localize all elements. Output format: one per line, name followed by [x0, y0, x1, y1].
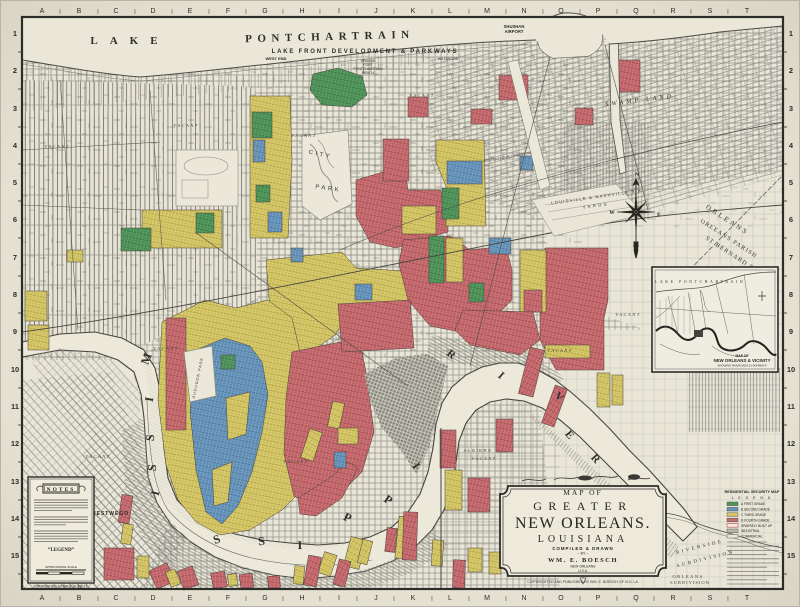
svg-text:14: 14: [11, 514, 20, 523]
svg-text:|: |: [245, 596, 246, 602]
svg-text:|: |: [59, 9, 60, 15]
svg-text:|: |: [431, 9, 432, 15]
svg-text:P: P: [596, 595, 601, 602]
svg-text:|: |: [208, 596, 209, 602]
svg-text:J: J: [374, 8, 378, 15]
svg-text:|: |: [393, 596, 394, 602]
svg-text:MAP OF: MAP OF: [563, 488, 602, 497]
svg-text:VACANT: VACANT: [283, 459, 308, 464]
svg-text:|: |: [393, 9, 394, 15]
svg-text:|: |: [282, 9, 283, 15]
svg-text:ORLEANS: ORLEANS: [672, 574, 703, 579]
svg-text:7: 7: [789, 253, 793, 262]
svg-text:“LEGEND”: “LEGEND”: [48, 547, 75, 553]
svg-text:VACANT: VACANT: [547, 348, 572, 353]
svg-text:13: 13: [11, 477, 19, 486]
svg-text:WM. E. BOESCH: WM. E. BOESCH: [548, 557, 618, 564]
svg-text:|: |: [134, 596, 135, 602]
svg-text:|: |: [208, 9, 209, 15]
svg-text:15: 15: [787, 551, 795, 560]
svg-text:|: |: [59, 596, 60, 602]
svg-text:S: S: [708, 595, 713, 602]
svg-text:|: |: [356, 9, 357, 15]
svg-text:A: A: [40, 595, 45, 602]
svg-text:|: |: [579, 596, 580, 602]
svg-text:I: I: [338, 595, 340, 602]
svg-text:Q: Q: [633, 595, 639, 602]
svg-text:K: K: [411, 8, 416, 15]
svg-text:E: E: [188, 595, 193, 602]
svg-text:I: I: [338, 8, 340, 15]
svg-text:|: |: [505, 596, 506, 602]
svg-text:COMMERCIAL: COMMERCIAL: [741, 535, 763, 539]
svg-text:14: 14: [787, 514, 796, 523]
svg-text:COMPILED & DRAWN: COMPILED & DRAWN: [552, 546, 613, 551]
svg-text:1: 1: [13, 29, 17, 38]
svg-text:NEW ORLEANS.: NEW ORLEANS.: [515, 515, 651, 532]
svg-text:|: |: [505, 9, 506, 15]
svg-text:15: 15: [11, 551, 19, 560]
svg-text:A: A: [40, 8, 45, 15]
svg-text:VACANT: VACANT: [471, 456, 496, 461]
svg-text:3: 3: [789, 104, 793, 113]
svg-text:E: E: [188, 8, 193, 15]
svg-text:G: G: [262, 595, 267, 602]
svg-text:O: O: [558, 8, 564, 15]
svg-text:R: R: [670, 595, 675, 602]
svg-text:|: |: [616, 9, 617, 15]
svg-text:RESIDENTIAL SECURITY MAP: RESIDENTIAL SECURITY MAP: [725, 490, 780, 494]
svg-text:12: 12: [11, 439, 19, 448]
svg-text:|: |: [653, 9, 654, 15]
svg-text:13: 13: [787, 477, 795, 486]
svg-text:NEW ORLEANS & VICINITY: NEW ORLEANS & VICINITY: [713, 358, 770, 363]
svg-text:L E G E N D: L E G E N D: [732, 496, 773, 500]
svg-text:C: C: [113, 8, 118, 15]
svg-text:C THIRD GRADE: C THIRD GRADE: [741, 513, 766, 517]
svg-text:VACANT: VACANT: [44, 144, 69, 149]
svg-text:S: S: [708, 8, 713, 15]
svg-text:5: 5: [789, 178, 793, 187]
svg-text:LOUISIANA: LOUISIANA: [538, 534, 628, 545]
svg-text:Q: Q: [633, 8, 639, 15]
svg-text:VACANT: VACANT: [291, 133, 316, 138]
svg-text:|: |: [727, 596, 728, 602]
svg-text:|: |: [468, 9, 469, 15]
svg-text:~ BY ~: ~ BY ~: [578, 552, 589, 556]
svg-text:3: 3: [13, 104, 17, 113]
svg-text:D: D: [150, 8, 155, 15]
svg-text:F: F: [226, 595, 230, 602]
svg-text:P: P: [596, 8, 601, 15]
svg-text:|: |: [319, 596, 320, 602]
svg-text:B: B: [77, 595, 82, 602]
svg-text:VACANT: VACANT: [615, 312, 640, 317]
svg-text:NOTES: NOTES: [47, 487, 76, 493]
svg-text:I: I: [297, 538, 302, 552]
svg-text:SHOWING RAILROADS & HIGHWAYS: SHOWING RAILROADS & HIGHWAYS: [718, 364, 767, 368]
svg-text:SUBDIVISION: SUBDIVISION: [670, 580, 710, 585]
svg-text:NEW ORLEANS: NEW ORLEANS: [570, 565, 596, 569]
svg-text:|: |: [97, 596, 98, 602]
svg-text:AIRPORT: AIRPORT: [505, 29, 524, 34]
svg-text:2: 2: [13, 66, 17, 75]
svg-text:|: |: [468, 596, 469, 602]
svg-text:T: T: [745, 8, 750, 15]
svg-text:|: |: [245, 9, 246, 15]
svg-text:F: F: [226, 8, 230, 15]
svg-text:B: B: [77, 8, 82, 15]
svg-text:9: 9: [13, 327, 17, 336]
svg-text:|: |: [653, 596, 654, 602]
svg-text:C: C: [113, 595, 118, 602]
svg-text:5: 5: [13, 178, 17, 187]
svg-text:H: H: [299, 8, 304, 15]
svg-text:10: 10: [787, 365, 795, 374]
svg-text:|: |: [356, 596, 357, 602]
svg-text:|: |: [319, 9, 320, 15]
svg-text:J: J: [374, 595, 378, 602]
svg-text:WESTWEGO: WESTWEGO: [91, 511, 129, 517]
svg-text:|: |: [282, 596, 283, 602]
svg-text:|: |: [542, 9, 543, 15]
svg-text:L: L: [448, 8, 452, 15]
svg-text:D: D: [150, 595, 155, 602]
svg-text:T: T: [745, 595, 750, 602]
svg-text:2: 2: [789, 66, 793, 75]
svg-text:|: |: [134, 9, 135, 15]
svg-text:WILDWOOD: WILDWOOD: [438, 57, 459, 61]
svg-text:|: |: [616, 596, 617, 602]
svg-text:ALGIERS: ALGIERS: [464, 448, 493, 453]
svg-text:|: |: [579, 9, 580, 15]
svg-text:8: 8: [13, 290, 17, 299]
svg-text:L: L: [448, 595, 452, 602]
svg-text:|: |: [431, 596, 432, 602]
svg-text:VACANT: VACANT: [85, 454, 110, 459]
svg-text:B SECOND GRADE: B SECOND GRADE: [741, 508, 770, 512]
svg-text:N: N: [521, 595, 526, 602]
svg-text:GREATER: GREATER: [533, 499, 633, 513]
svg-text:A FIRST GRADE: A FIRST GRADE: [741, 502, 765, 506]
svg-text:G: G: [262, 8, 267, 15]
svg-text:VACANT: VACANT: [173, 123, 198, 128]
svg-text:M: M: [484, 595, 490, 602]
svg-text:M: M: [484, 8, 490, 15]
svg-text:11: 11: [11, 402, 19, 411]
svg-text:INDUSTRIAL: INDUSTRIAL: [741, 529, 760, 533]
svg-text:|: |: [727, 9, 728, 15]
svg-text:6: 6: [13, 215, 17, 224]
svg-text:12: 12: [787, 439, 795, 448]
svg-text:VACANT: VACANT: [153, 346, 178, 351]
svg-text:W: W: [609, 210, 615, 216]
svg-text:E: E: [657, 212, 661, 218]
svg-text:R: R: [670, 8, 675, 15]
svg-text:WEST END: WEST END: [265, 56, 286, 61]
svg-text:VACANT: VACANT: [409, 93, 434, 98]
svg-text:|: |: [690, 596, 691, 602]
svg-text:|: |: [171, 9, 172, 15]
svg-text:U.S.A.: U.S.A.: [578, 569, 588, 573]
svg-text:N: N: [521, 8, 526, 15]
svg-text:BEACH: BEACH: [362, 71, 374, 75]
svg-text:LAKE: LAKE: [90, 35, 169, 47]
svg-text:D FOURTH GRADE: D FOURTH GRADE: [741, 518, 770, 522]
svg-text:1: 1: [789, 29, 793, 38]
svg-text:LAKE FRONT DEVELOPMENT & P: LAKE FRONT DEVELOPMENT & PARKWAYS: [272, 49, 459, 55]
svg-text:APPROXIMATE SCALE: APPROXIMATE SCALE: [45, 565, 77, 569]
svg-text:|: |: [171, 596, 172, 602]
svg-text:LAKE PONTCHARTRAIN: LAKE PONTCHARTRAIN: [655, 279, 745, 284]
svg-text:9: 9: [789, 327, 793, 336]
svg-text:11: 11: [787, 402, 795, 411]
svg-text:|: |: [97, 9, 98, 15]
svg-text:K: K: [411, 595, 416, 602]
svg-text:7: 7: [13, 253, 17, 262]
svg-text:6: 6: [789, 215, 793, 224]
svg-text:8: 8: [789, 290, 793, 299]
svg-text:|: |: [542, 596, 543, 602]
svg-text:O: O: [558, 595, 564, 602]
svg-text:|: |: [690, 9, 691, 15]
svg-text:10: 10: [11, 365, 19, 374]
svg-text:SPARSELY BUILT UP: SPARSELY BUILT UP: [741, 524, 772, 528]
svg-text:N: N: [635, 172, 639, 178]
svg-text:H: H: [299, 595, 304, 602]
